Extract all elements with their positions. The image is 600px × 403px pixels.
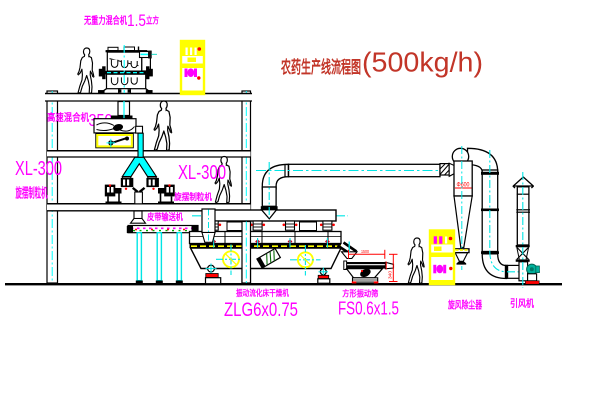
- svg-text:立方: 立方: [146, 15, 159, 26]
- svg-text:无重力混合机: 无重力混合机: [83, 14, 127, 27]
- svg-text:XL-300: XL-300: [15, 158, 62, 180]
- svg-text:旋摆制粒机: 旋摆制粒机: [173, 191, 212, 202]
- svg-text:ZLG6x0.75: ZLG6x0.75: [224, 299, 298, 321]
- svg-text:FS0.6x1.5: FS0.6x1.5: [338, 298, 399, 318]
- svg-text:旋摆制粒机: 旋摆制粒机: [15, 186, 47, 201]
- svg-text:340: 340: [388, 270, 393, 279]
- svg-text:农药生产线流程图: 农药生产线流程图: [280, 57, 361, 77]
- svg-text:高速混合机: 高速混合机: [47, 111, 89, 124]
- svg-text:皮带输送机: 皮带输送机: [146, 211, 183, 222]
- svg-text:方形振动筛: 方形振动筛: [342, 288, 378, 298]
- svg-text:1500: 1500: [361, 249, 369, 254]
- svg-text:引风机: 引风机: [510, 297, 534, 310]
- svg-text:振动流化床干燥机: 振动流化床干燥机: [236, 288, 289, 298]
- svg-text:XL-300: XL-300: [178, 162, 226, 184]
- svg-text:(500kg/h): (500kg/h): [362, 47, 483, 78]
- svg-text:1.5: 1.5: [127, 11, 146, 30]
- svg-text:旋风除尘器: 旋风除尘器: [447, 299, 482, 312]
